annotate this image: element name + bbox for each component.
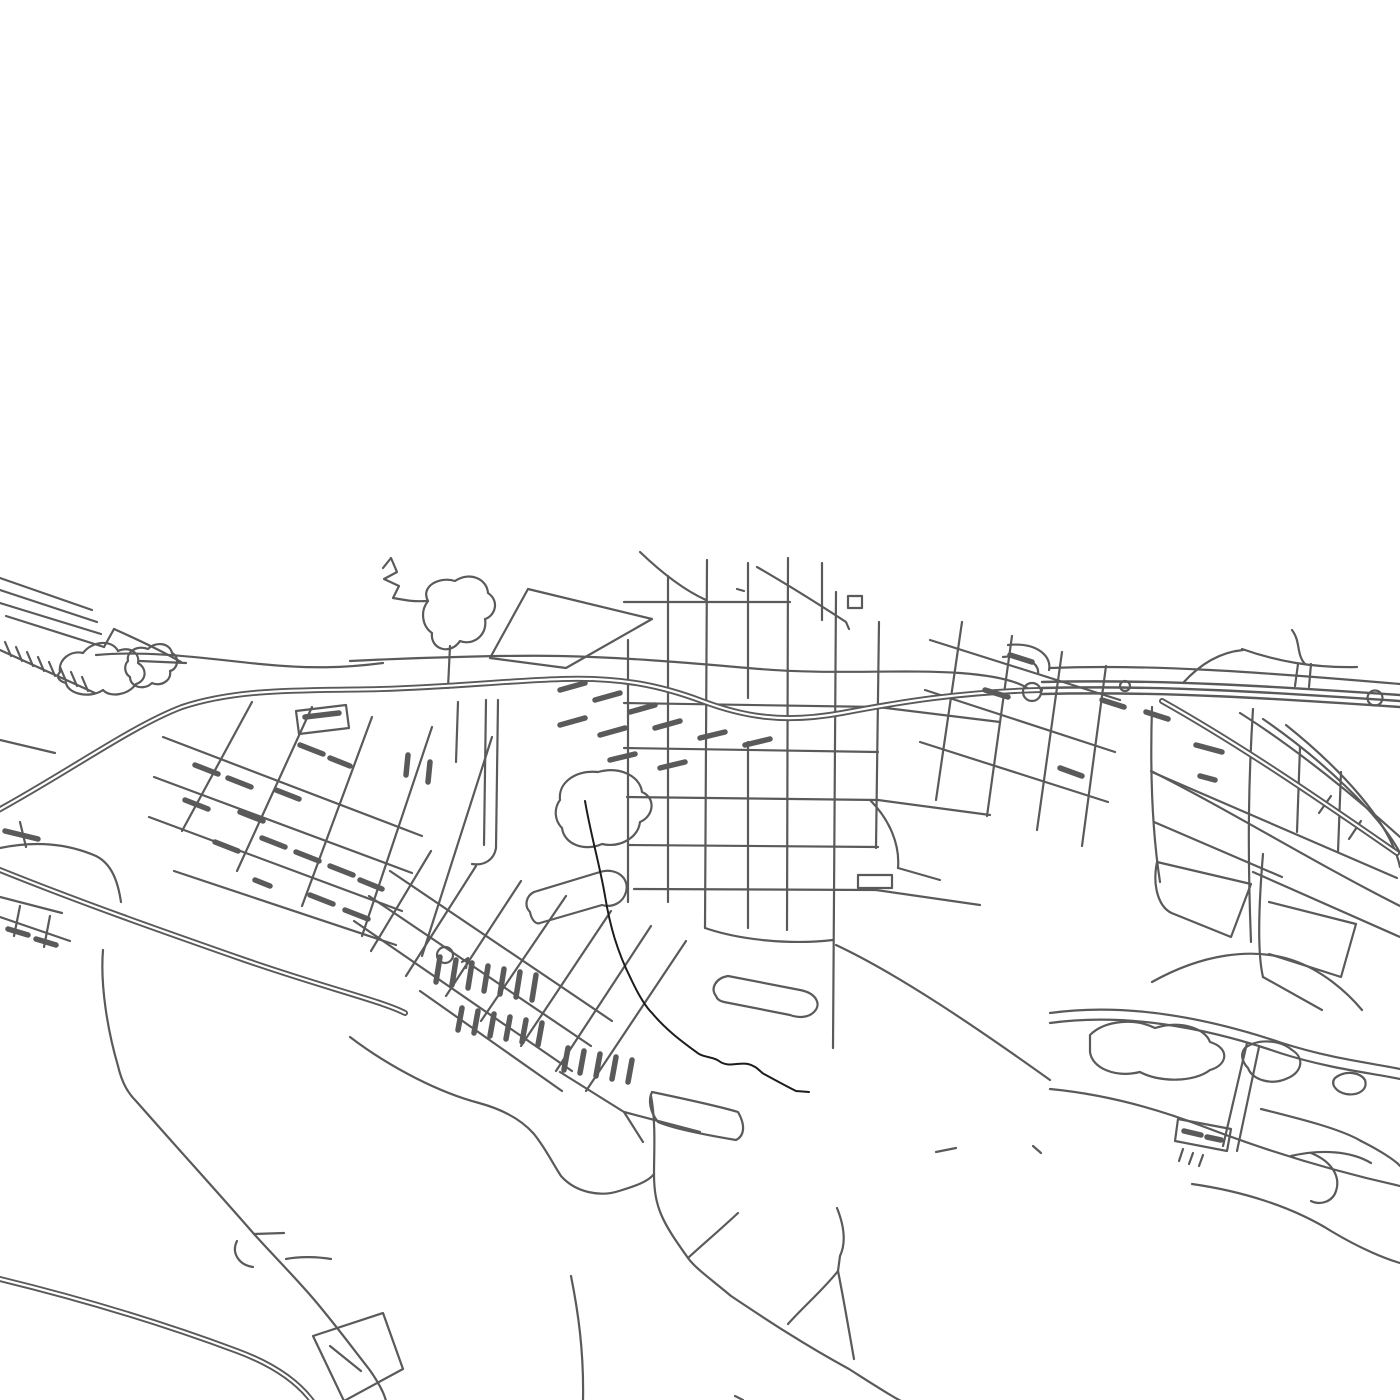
minor-roads-path xyxy=(634,889,876,890)
building-bars-path xyxy=(5,831,38,839)
minor-roads-layer xyxy=(0,552,1400,1400)
minor-roads-path xyxy=(878,800,990,815)
minor-roads-path xyxy=(1309,664,1311,687)
minor-roads-path xyxy=(527,871,627,924)
minor-roads-path xyxy=(858,875,892,888)
building-bars-path xyxy=(500,969,504,994)
minor-roads-path xyxy=(422,737,492,956)
building-bars-path xyxy=(300,745,323,754)
motorway-casing-path xyxy=(0,679,1040,812)
minor-roads-path xyxy=(1237,1047,1259,1151)
minor-roads-path xyxy=(1292,630,1305,664)
minor-roads-path xyxy=(640,552,706,600)
minor-roads-path xyxy=(149,817,402,911)
minor-roads-path xyxy=(787,558,788,930)
building-bars-path xyxy=(458,1008,462,1030)
building-bars-path xyxy=(560,683,585,690)
minor-roads-path xyxy=(102,950,386,1400)
building-bars-path xyxy=(506,1017,510,1039)
trunk-band-layer xyxy=(1042,681,1400,707)
minor-roads-path xyxy=(838,1271,854,1359)
building-bars-path xyxy=(745,739,770,745)
minor-roads-path xyxy=(1151,771,1400,906)
minor-roads-path xyxy=(1361,1141,1400,1166)
building-bars-path xyxy=(262,838,285,847)
minor-roads-path xyxy=(936,622,962,800)
minor-roads-path xyxy=(1261,1109,1361,1141)
minor-roads-path xyxy=(235,1241,253,1267)
minor-roads-path xyxy=(688,1213,738,1258)
minor-roads-path xyxy=(925,690,1115,752)
building-bars-path xyxy=(296,852,319,861)
minor-roads-path xyxy=(936,1148,956,1152)
minor-roads-path xyxy=(1263,977,1322,1010)
map-viewport[interactable] xyxy=(0,0,1400,1400)
minor-roads-path xyxy=(286,1257,331,1259)
building-bars-path xyxy=(330,866,353,875)
minor-roads-path xyxy=(1269,902,1356,977)
minor-roads-path xyxy=(1311,1153,1337,1203)
building-bars-path xyxy=(490,1014,494,1036)
building-bars-path xyxy=(276,790,299,799)
building-bars-path xyxy=(560,718,585,725)
building-bars-path xyxy=(1146,712,1168,719)
minor-roads-path xyxy=(876,622,879,848)
building-bars-path xyxy=(474,1011,478,1033)
building-bars-path xyxy=(600,728,625,735)
minor-roads-path xyxy=(114,629,181,662)
minor-roads-path xyxy=(627,797,878,800)
building-bars-path xyxy=(630,705,655,712)
minor-roads-path xyxy=(848,596,862,608)
minor-roads-path xyxy=(1333,1073,1365,1094)
minor-roads-path xyxy=(354,921,572,1071)
minor-roads-path xyxy=(629,845,878,847)
building-bars-path xyxy=(1060,768,1082,776)
minor-roads-path xyxy=(624,703,878,707)
motorway-casing-path xyxy=(1162,701,1397,853)
minor-roads-path xyxy=(714,976,818,1017)
minor-roads-path xyxy=(496,700,498,848)
minor-roads-path xyxy=(362,727,432,936)
road-network-layers xyxy=(0,552,1400,1400)
minor-roads-path xyxy=(472,848,496,864)
minor-roads-path xyxy=(448,646,450,688)
building-bars-path xyxy=(468,963,472,988)
building-bars-path xyxy=(580,1051,584,1073)
minor-roads-path xyxy=(405,600,428,601)
minor-roads-path xyxy=(898,868,940,880)
motorway-casing-path xyxy=(0,1279,312,1400)
minor-roads-path xyxy=(0,650,95,693)
minor-roads-path xyxy=(571,1276,583,1400)
building-bars-path xyxy=(330,758,350,766)
building-bars-path xyxy=(255,880,270,886)
minor-roads-path xyxy=(654,1174,901,1400)
minor-roads-path xyxy=(735,1396,743,1400)
minor-roads-path xyxy=(788,1271,838,1324)
building-bars-path xyxy=(1184,1131,1201,1135)
building-bars-path xyxy=(484,966,488,991)
building-bars-path xyxy=(228,778,251,787)
minor-roads-path xyxy=(1192,1184,1400,1263)
building-bars-path xyxy=(516,972,520,997)
building-bars-path xyxy=(310,895,333,904)
minor-roads-path xyxy=(1223,1043,1247,1146)
building-bars-path xyxy=(1207,1137,1221,1140)
building-bars-path xyxy=(1102,700,1124,707)
minor-roads-path xyxy=(556,770,652,847)
minor-roads-path xyxy=(705,560,707,928)
minor-roads-path xyxy=(1183,650,1243,683)
building-bars-path xyxy=(406,755,408,775)
building-bars-path xyxy=(36,939,56,945)
building-bars-path xyxy=(538,1023,542,1045)
minor-roads-path xyxy=(837,1208,844,1271)
minor-roads-path xyxy=(1199,1155,1203,1166)
minor-roads-path xyxy=(0,897,62,913)
minor-roads-path xyxy=(705,928,833,942)
building-bars-path xyxy=(1196,745,1222,752)
minor-roads-path xyxy=(254,1233,284,1234)
building-bars-path xyxy=(215,842,238,851)
minor-roads-path xyxy=(1050,1020,1400,1079)
motorway-inner-path xyxy=(0,679,1040,812)
minor-roads-path xyxy=(586,941,686,1091)
minor-roads-path xyxy=(1152,954,1362,1010)
minor-roads-path xyxy=(624,748,878,752)
minor-roads-path xyxy=(1033,1146,1041,1153)
building-bars-path xyxy=(660,762,685,768)
minor-roads-path xyxy=(383,558,405,600)
building-bars-path xyxy=(185,800,208,809)
minor-roads-path xyxy=(390,871,612,1021)
building-bars-path xyxy=(532,975,536,1000)
minor-roads-path xyxy=(481,896,566,1021)
building-bars-path xyxy=(610,754,635,760)
minor-roads-path xyxy=(1179,1149,1183,1161)
building-bars-path xyxy=(612,1057,616,1079)
minor-roads-path xyxy=(1263,719,1400,853)
minor-roads-path xyxy=(350,1037,654,1194)
minor-roads-path xyxy=(920,742,1108,802)
minor-roads-path xyxy=(870,800,898,868)
minor-roads-path xyxy=(125,644,177,687)
minor-roads-path xyxy=(371,851,431,951)
minor-roads-path xyxy=(330,1346,361,1371)
building-bars-path xyxy=(1010,655,1032,662)
building-bars-path xyxy=(8,929,28,935)
building-bars-path xyxy=(700,732,725,738)
street-map-canvas xyxy=(0,0,1400,1400)
building-bars-path xyxy=(345,910,368,919)
minor-roads-path xyxy=(1155,862,1251,937)
minor-roads-path xyxy=(1259,854,1263,977)
minor-roads-path xyxy=(456,702,458,762)
minor-roads-path xyxy=(1189,1153,1193,1164)
minor-roads-path xyxy=(836,945,1050,1080)
building-bars-path xyxy=(428,762,430,782)
minor-roads-path xyxy=(650,1092,743,1140)
building-bars-path xyxy=(628,1060,632,1082)
motorway-inner-path xyxy=(0,1279,312,1400)
minor-roads-path xyxy=(833,592,836,1048)
minor-roads-path xyxy=(876,890,980,905)
building-bars-path xyxy=(595,693,620,700)
building-bars-path xyxy=(1200,776,1215,780)
minor-roads-path xyxy=(423,577,495,650)
roundabouts-layer xyxy=(437,681,1383,963)
building-bars-path xyxy=(655,721,680,728)
minor-roads-path xyxy=(1242,1041,1300,1081)
minor-roads-path xyxy=(0,740,55,753)
minor-roads-path xyxy=(484,700,486,845)
minor-roads-path xyxy=(737,589,744,591)
minor-roads-path xyxy=(1151,707,1160,882)
trunk-band-path xyxy=(1042,693,1400,707)
